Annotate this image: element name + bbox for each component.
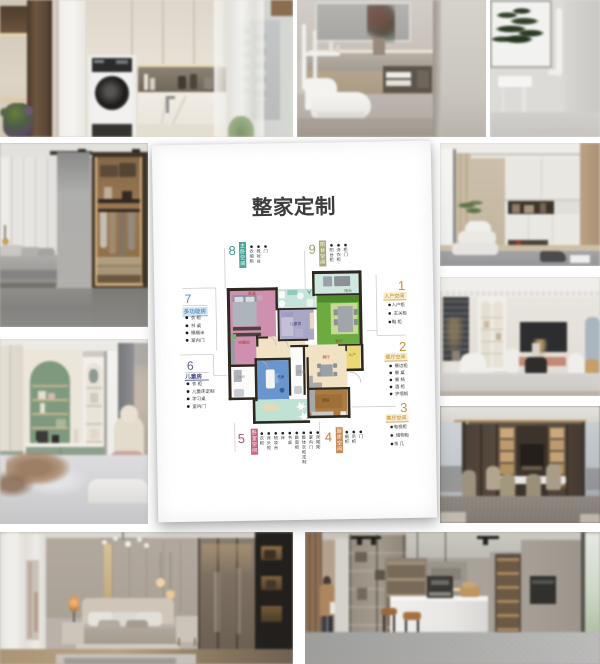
svg-text:1: 1 bbox=[398, 278, 405, 293]
svg-text:5: 5 bbox=[238, 431, 245, 446]
svg-text:入户: 入户 bbox=[348, 352, 356, 357]
svg-text:卧室: 卧室 bbox=[248, 291, 256, 296]
svg-text:床头柜: 床头柜 bbox=[267, 434, 272, 451]
svg-text:客厅: 客厅 bbox=[335, 338, 343, 343]
svg-text:室内门: 室内门 bbox=[191, 337, 205, 344]
svg-text:卫生间: 卫生间 bbox=[296, 369, 305, 374]
svg-text:书 桌: 书 桌 bbox=[191, 322, 202, 329]
svg-text:门: 门 bbox=[359, 433, 363, 440]
svg-text:9: 9 bbox=[308, 242, 315, 257]
svg-text:茶 几: 茶 几 bbox=[394, 440, 405, 447]
svg-text:客厅空间: 客厅空间 bbox=[386, 414, 406, 421]
svg-text:餐 椅: 餐 椅 bbox=[395, 376, 406, 383]
svg-text:床: 床 bbox=[281, 434, 286, 441]
svg-text:电视柜: 电视柜 bbox=[394, 423, 408, 430]
svg-text:玄关柜: 玄关柜 bbox=[394, 310, 408, 317]
svg-text:书房: 书房 bbox=[277, 374, 285, 379]
svg-text:衣 柜: 衣 柜 bbox=[191, 314, 202, 321]
svg-text:鞋 柜: 鞋 柜 bbox=[392, 318, 403, 325]
svg-text:餐边柜: 餐边柜 bbox=[395, 362, 409, 369]
svg-text:2: 2 bbox=[399, 339, 406, 354]
svg-text:阳台柜: 阳台柜 bbox=[329, 246, 333, 263]
svg-text:榻榻米: 榻榻米 bbox=[191, 329, 205, 336]
svg-text:儿童房: 儿童房 bbox=[184, 372, 202, 380]
svg-text:厨房空间: 厨房空间 bbox=[337, 429, 342, 453]
svg-text:餐 桌: 餐 桌 bbox=[395, 369, 406, 376]
svg-text:儿童床定制: 儿童床定制 bbox=[192, 388, 215, 395]
svg-text:衣帽柜: 衣帽柜 bbox=[249, 248, 254, 265]
svg-text:橱柜: 橱柜 bbox=[345, 433, 350, 445]
svg-text:阳台: 阳台 bbox=[344, 288, 352, 293]
svg-text:整体衣柜定制: 整体衣柜定制 bbox=[302, 434, 308, 466]
svg-text:整家定制: 整家定制 bbox=[251, 194, 336, 219]
svg-text:卫生间: 卫生间 bbox=[236, 374, 245, 379]
svg-text:4: 4 bbox=[325, 429, 332, 444]
svg-text:梳妆台: 梳妆台 bbox=[256, 248, 261, 265]
svg-text:8: 8 bbox=[228, 243, 235, 258]
svg-text:酒 柜: 酒 柜 bbox=[395, 383, 406, 390]
svg-text:卧室空间: 卧室空间 bbox=[252, 429, 257, 454]
svg-text:入户空间: 入户空间 bbox=[384, 292, 404, 299]
svg-text:书桌: 书桌 bbox=[288, 434, 293, 446]
svg-text:餐厅: 餐厅 bbox=[322, 354, 330, 359]
svg-text:柜门: 柜门 bbox=[343, 246, 347, 258]
svg-text:室内门: 室内门 bbox=[192, 403, 206, 410]
svg-text:厨房: 厨房 bbox=[322, 397, 330, 402]
svg-text:护墙板: 护墙板 bbox=[395, 390, 409, 397]
svg-text:洗衣柜: 洗衣柜 bbox=[336, 246, 341, 263]
svg-text:衣帽间: 衣帽间 bbox=[238, 340, 250, 345]
svg-text:储物柜: 储物柜 bbox=[396, 432, 410, 439]
svg-text:衣柜: 衣柜 bbox=[260, 435, 265, 447]
svg-text:主卧空间: 主卧空间 bbox=[240, 242, 245, 267]
svg-text:儿童房: 儿童房 bbox=[290, 321, 302, 326]
svg-text:3: 3 bbox=[400, 400, 407, 415]
svg-text:门: 门 bbox=[263, 247, 267, 254]
svg-text:吊柜: 吊柜 bbox=[352, 434, 356, 445]
svg-text:学习桌: 学习桌 bbox=[192, 395, 206, 402]
svg-text:室内门: 室内门 bbox=[309, 434, 313, 451]
svg-text:入户柜: 入户柜 bbox=[391, 301, 405, 308]
svg-text:6: 6 bbox=[187, 359, 194, 373]
svg-text:飘窗柜: 飘窗柜 bbox=[295, 435, 300, 451]
svg-text:衣 柜: 衣 柜 bbox=[192, 380, 203, 387]
svg-text:阳台空间: 阳台空间 bbox=[320, 241, 325, 266]
svg-text:餐厅空间: 餐厅空间 bbox=[385, 353, 405, 360]
svg-text:7: 7 bbox=[185, 292, 192, 306]
svg-text:梳妆台: 梳妆台 bbox=[274, 434, 279, 451]
